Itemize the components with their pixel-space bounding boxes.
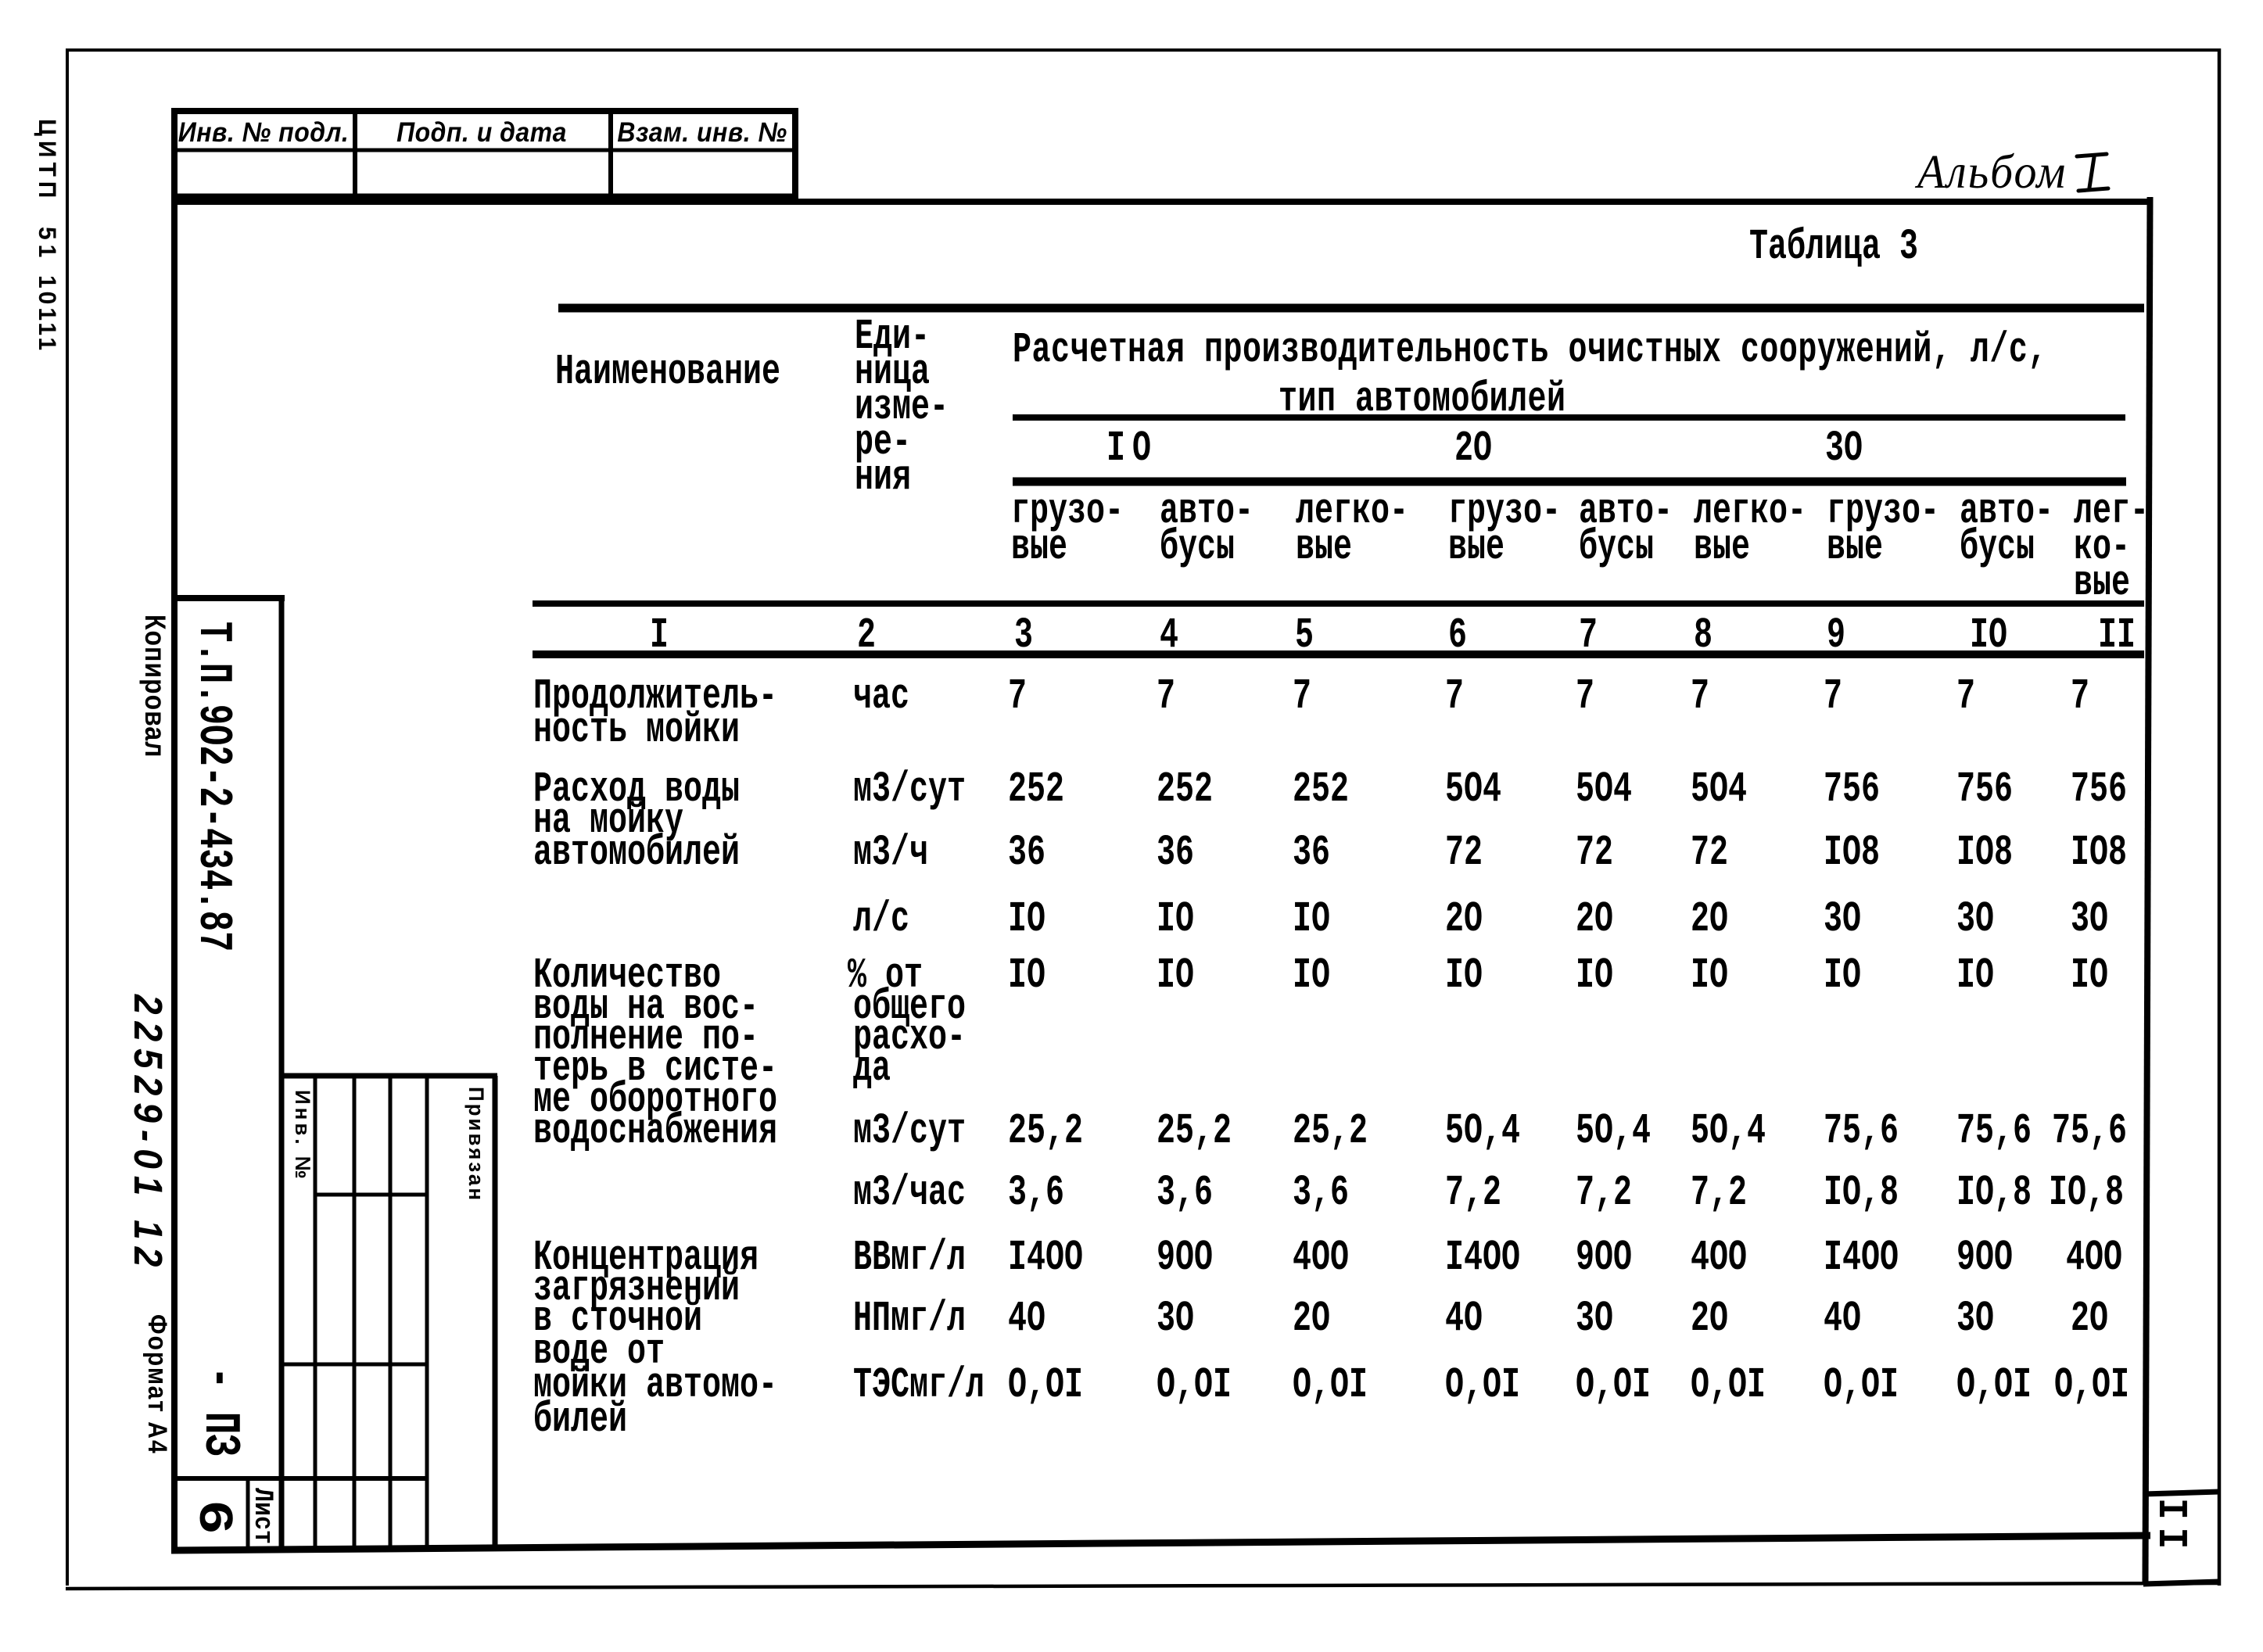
svg-text:7: 7 xyxy=(1579,612,1598,661)
svg-text:ния: ния xyxy=(855,454,911,503)
svg-text:4О: 4О xyxy=(1824,1295,1861,1344)
svg-text:5О4: 5О4 xyxy=(1576,766,1632,815)
svg-text:9ОО: 9ОО xyxy=(1956,1235,2013,1283)
svg-text:3,6: 3,6 xyxy=(1008,1170,1064,1218)
svg-text:2О: 2О xyxy=(1454,425,1492,474)
svg-text:7: 7 xyxy=(1824,673,1842,722)
svg-text:25,2: 25,2 xyxy=(1008,1108,1083,1156)
svg-text:IO: IO xyxy=(1293,896,1330,944)
svg-text:756: 756 xyxy=(2071,766,2127,815)
svg-text:IO: IO xyxy=(1008,952,1045,1001)
svg-text:IO: IO xyxy=(1157,952,1194,1001)
svg-text:IО8: IО8 xyxy=(1824,830,1880,878)
svg-text:9ОО: 9ОО xyxy=(1576,1235,1632,1283)
svg-text:4: 4 xyxy=(1160,612,1178,661)
svg-text:IO: IO xyxy=(1106,425,1158,474)
svg-text:Привязан: Привязан xyxy=(464,1087,489,1202)
svg-text:I: I xyxy=(650,612,669,661)
svg-text:3О: 3О xyxy=(2071,896,2108,944)
svg-text:автомобилей: автомобилей xyxy=(533,830,740,878)
svg-text:25,2: 25,2 xyxy=(1157,1108,1232,1156)
svg-text:7,2: 7,2 xyxy=(1576,1170,1632,1218)
svg-text:II: II xyxy=(2098,612,2136,661)
svg-text:5: 5 xyxy=(1295,612,1314,661)
svg-text:час: час xyxy=(853,673,909,722)
svg-text:2О: 2О xyxy=(1691,896,1728,944)
svg-text:вые: вые xyxy=(1827,524,1883,572)
svg-text:IО,8: IО,8 xyxy=(1956,1170,2032,1218)
svg-text:НПмг/л: НПмг/л xyxy=(853,1295,966,1344)
svg-text:О,ОI: О,ОI xyxy=(1824,1362,1899,1410)
svg-text:3О: 3О xyxy=(1956,896,1994,944)
svg-text:252: 252 xyxy=(1008,766,1064,815)
svg-text:36: 36 xyxy=(1157,830,1194,878)
svg-text:I4ОО: I4ОО xyxy=(1824,1235,1899,1283)
svg-text:75,6: 75,6 xyxy=(1824,1108,1899,1156)
svg-text:6: 6 xyxy=(185,1500,241,1535)
svg-text:8: 8 xyxy=(1694,612,1712,661)
svg-text:О,ОI: О,ОI xyxy=(1293,1362,1368,1410)
svg-text:IO: IO xyxy=(1008,896,1045,944)
svg-text:ЦИТП: ЦИТП xyxy=(34,119,62,202)
svg-text:756: 756 xyxy=(1956,766,2013,815)
svg-text:ТЭСмг/л: ТЭСмг/л xyxy=(853,1362,984,1410)
svg-text:2О: 2О xyxy=(1576,896,1613,944)
svg-text:3,6: 3,6 xyxy=(1293,1170,1349,1218)
svg-text:I4ОО: I4ОО xyxy=(1008,1235,1083,1283)
svg-text:бусы: бусы xyxy=(1160,524,1235,572)
svg-text:5О,4: 5О,4 xyxy=(1576,1108,1651,1156)
svg-text:36: 36 xyxy=(1008,830,1045,878)
svg-text:Инв. №: Инв. № xyxy=(291,1090,315,1182)
svg-text:7,2: 7,2 xyxy=(1445,1170,1501,1218)
svg-text:тип автомобилей: тип автомобилей xyxy=(1279,376,1565,425)
svg-text:7: 7 xyxy=(1956,673,1975,722)
svg-text:IО8: IО8 xyxy=(2071,830,2127,878)
svg-text:7: 7 xyxy=(1157,673,1175,722)
svg-text:75,6: 75,6 xyxy=(2052,1108,2127,1156)
svg-text:7: 7 xyxy=(1445,673,1464,722)
svg-text:Таблица 3: Таблица 3 xyxy=(1749,224,1918,272)
svg-text:22529-01 12: 22529-01 12 xyxy=(125,994,170,1274)
svg-text:IO: IO xyxy=(1691,952,1728,1001)
svg-text:IO: IO xyxy=(1157,896,1194,944)
svg-text:л/с: л/с xyxy=(853,896,909,944)
svg-text:IO: IO xyxy=(1824,952,1861,1001)
svg-text:- ПЗ: - ПЗ xyxy=(190,1367,248,1457)
svg-text:4ОО: 4ОО xyxy=(1293,1235,1349,1283)
svg-text:5О,4: 5О,4 xyxy=(1445,1108,1520,1156)
svg-text:3О: 3О xyxy=(1825,425,1863,474)
svg-text:О,ОI: О,ОI xyxy=(1691,1362,1766,1410)
svg-text:IО8: IО8 xyxy=(1956,830,2013,878)
svg-text:9ОО: 9ОО xyxy=(1157,1235,1213,1283)
svg-text:вые: вые xyxy=(1448,524,1504,572)
svg-text:м3/час: м3/час xyxy=(853,1170,966,1218)
svg-text:Инв. № подл.: Инв. № подл. xyxy=(178,118,350,149)
svg-text:Взам. инв. №: Взам. инв. № xyxy=(617,118,787,149)
svg-text:IO: IO xyxy=(1956,952,1994,1001)
svg-text:О,ОI: О,ОI xyxy=(1956,1362,2032,1410)
svg-text:IО,8: IО,8 xyxy=(2049,1170,2124,1218)
svg-text:2: 2 xyxy=(857,612,876,661)
svg-text:да: да xyxy=(853,1045,891,1094)
svg-text:ВВмг/л: ВВмг/л xyxy=(853,1235,966,1283)
svg-text:5О4: 5О4 xyxy=(1691,766,1747,815)
svg-text:252: 252 xyxy=(1157,766,1213,815)
svg-text:Альбом: Альбом xyxy=(1914,145,2067,199)
svg-text:бусы: бусы xyxy=(1579,524,1654,572)
svg-text:3О: 3О xyxy=(1157,1295,1194,1344)
svg-text:7: 7 xyxy=(1293,673,1311,722)
svg-text:6: 6 xyxy=(1448,612,1467,661)
svg-text:2О: 2О xyxy=(1293,1295,1330,1344)
svg-text:О,ОI: О,ОI xyxy=(1157,1362,1232,1410)
svg-text:7: 7 xyxy=(1008,673,1027,722)
svg-text:25,2: 25,2 xyxy=(1293,1108,1368,1156)
svg-text:5О4: 5О4 xyxy=(1445,766,1501,815)
svg-text:II: II xyxy=(2147,1498,2194,1557)
svg-text:IO: IO xyxy=(1576,952,1613,1001)
svg-text:7: 7 xyxy=(2071,673,2089,722)
svg-text:72: 72 xyxy=(1445,830,1483,878)
svg-text:м3/сут: м3/сут xyxy=(853,1108,966,1156)
svg-text:IO: IO xyxy=(1445,952,1483,1001)
svg-text:водоснабжения: водоснабжения xyxy=(533,1108,777,1156)
svg-text:IO: IO xyxy=(1293,952,1330,1001)
svg-text:IO: IO xyxy=(2071,952,2108,1001)
svg-text:бусы: бусы xyxy=(1960,524,2035,572)
svg-text:вые: вые xyxy=(1011,524,1067,572)
svg-text:вые: вые xyxy=(2074,560,2130,608)
svg-text:756: 756 xyxy=(1824,766,1880,815)
svg-text:252: 252 xyxy=(1293,766,1349,815)
svg-text:I4ОО: I4ОО xyxy=(1445,1235,1520,1283)
svg-text:3,6: 3,6 xyxy=(1157,1170,1213,1218)
svg-text:72: 72 xyxy=(1691,830,1728,878)
svg-text:билей: билей xyxy=(533,1396,627,1445)
svg-text:4ОО: 4ОО xyxy=(1691,1235,1747,1283)
svg-text:Наименование: Наименование xyxy=(555,349,780,397)
svg-text:3О: 3О xyxy=(1576,1295,1613,1344)
svg-text:Лист: Лист xyxy=(247,1488,278,1544)
svg-text:3: 3 xyxy=(1014,612,1033,661)
svg-text:7: 7 xyxy=(1691,673,1709,722)
svg-text:вые: вые xyxy=(1694,524,1750,572)
svg-text:Т.П.9О2-2-434.87: Т.П.9О2-2-434.87 xyxy=(187,622,240,951)
svg-text:4О: 4О xyxy=(1008,1295,1045,1344)
svg-text:9: 9 xyxy=(1827,612,1845,661)
svg-text:О,ОI: О,ОI xyxy=(1008,1362,1083,1410)
svg-text:75,6: 75,6 xyxy=(1956,1108,2032,1156)
svg-text:3О: 3О xyxy=(1824,896,1861,944)
svg-text:ность мойки: ность мойки xyxy=(533,707,740,755)
svg-text:51: 51 xyxy=(34,227,62,262)
svg-text:вые: вые xyxy=(1296,524,1352,572)
svg-text:7: 7 xyxy=(1576,673,1594,722)
svg-text:2О: 2О xyxy=(1445,896,1483,944)
svg-text:7,2: 7,2 xyxy=(1691,1170,1747,1218)
svg-text:IО,8: IО,8 xyxy=(1824,1170,1899,1218)
svg-text:36: 36 xyxy=(1293,830,1330,878)
svg-text:Расчетная производительность о: Расчетная производительность очистных со… xyxy=(1013,327,2047,375)
svg-text:4О: 4О xyxy=(1445,1295,1483,1344)
svg-text:3О: 3О xyxy=(1956,1295,1994,1344)
svg-text:5О,4: 5О,4 xyxy=(1691,1108,1766,1156)
svg-text:4ОО: 4ОО xyxy=(2066,1235,2122,1283)
svg-text:м3/ч: м3/ч xyxy=(853,830,928,878)
svg-text:О,ОI: О,ОI xyxy=(1576,1362,1651,1410)
svg-text:Подп. и дата: Подп. и дата xyxy=(396,118,567,149)
svg-text:IO: IO xyxy=(1970,612,2007,661)
svg-text:Формат А4: Формат А4 xyxy=(143,1314,173,1455)
svg-text:м3/сут: м3/сут xyxy=(853,766,966,815)
svg-text:Копировал: Копировал xyxy=(138,615,170,758)
svg-text:О,ОI: О,ОI xyxy=(2054,1362,2129,1410)
svg-text:10111: 10111 xyxy=(34,275,62,353)
svg-text:2О: 2О xyxy=(1691,1295,1728,1344)
svg-text:2О: 2О xyxy=(2071,1295,2108,1344)
svg-text:72: 72 xyxy=(1576,830,1613,878)
svg-text:О,ОI: О,ОI xyxy=(1445,1362,1520,1410)
